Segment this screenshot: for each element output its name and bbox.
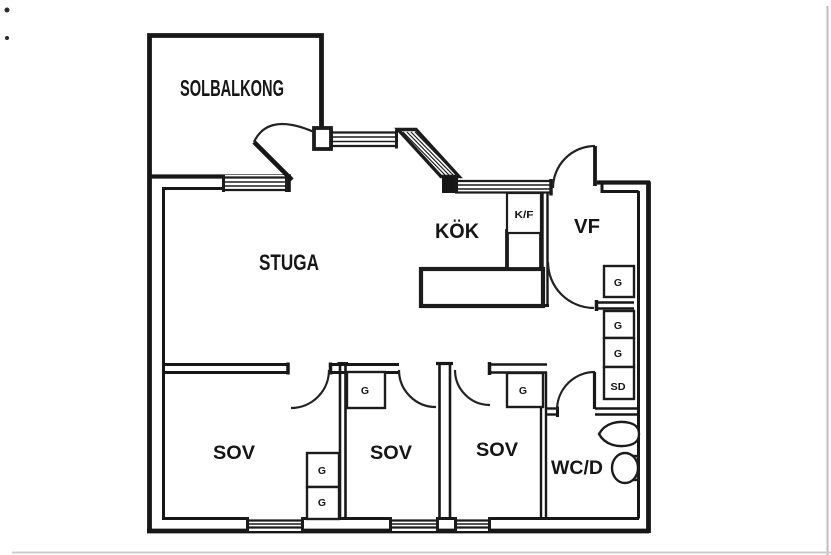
- room-label-stuga: STUGA: [259, 250, 319, 275]
- window-sov-right-bottom: [454, 516, 491, 531]
- closet-label-g-vf: G: [614, 277, 622, 289]
- closet-label-g-sov-left-upper: G: [318, 465, 326, 477]
- door-sov-middle: [399, 370, 436, 407]
- window-sov-middle-bottom: [389, 516, 439, 531]
- bath-fixtures: [599, 422, 639, 483]
- floor-plan-page: SOLBALKONG STUGA KÖK VF SOV SOV SOV WC/D…: [0, 0, 831, 555]
- door-sov-left: [291, 370, 329, 408]
- closet-label-g-sov-middle: G: [361, 385, 369, 397]
- room-label-solbalkong: SOLBALKONG: [180, 75, 284, 101]
- window-sov-left-bottom: [246, 516, 304, 531]
- room-label-wcd: WC/D: [551, 458, 603, 479]
- closet-label-g-hall-upper: G: [614, 320, 622, 332]
- window-kitchen-diagonal: [398, 130, 459, 194]
- room-label-sov-middle: SOV: [370, 443, 412, 464]
- room-label-vf: VF: [574, 216, 600, 238]
- closet-label-kf: K/F: [515, 209, 535, 221]
- scan-artifacts: [5, 6, 831, 555]
- closet-label-g-sov-right: G: [519, 385, 527, 397]
- door-sov-right: [455, 370, 490, 405]
- sink-fixture: [599, 422, 639, 446]
- door-entrance: [553, 146, 595, 188]
- door-vf-hall: [548, 262, 594, 308]
- floor-plan: SOLBALKONG STUGA KÖK VF SOV SOV SOV WC/D…: [0, 0, 831, 555]
- toilet-fixture: [612, 453, 638, 483]
- fridge-unit: [507, 231, 541, 269]
- window-stuga-top: [222, 175, 288, 193]
- door-wcd: [557, 372, 595, 410]
- window-kitchen-upper: [314, 128, 398, 149]
- door-balcony: [254, 124, 314, 180]
- closet-label-g-hall-lower: G: [614, 348, 622, 360]
- room-label-kok: KÖK: [435, 220, 479, 243]
- room-label-sov-left: SOV: [213, 443, 255, 464]
- closet-label-g-sov-left-lower: G: [318, 497, 326, 509]
- room-label-sov-right: SOV: [476, 440, 518, 461]
- closet-label-sd: SD: [611, 381, 626, 393]
